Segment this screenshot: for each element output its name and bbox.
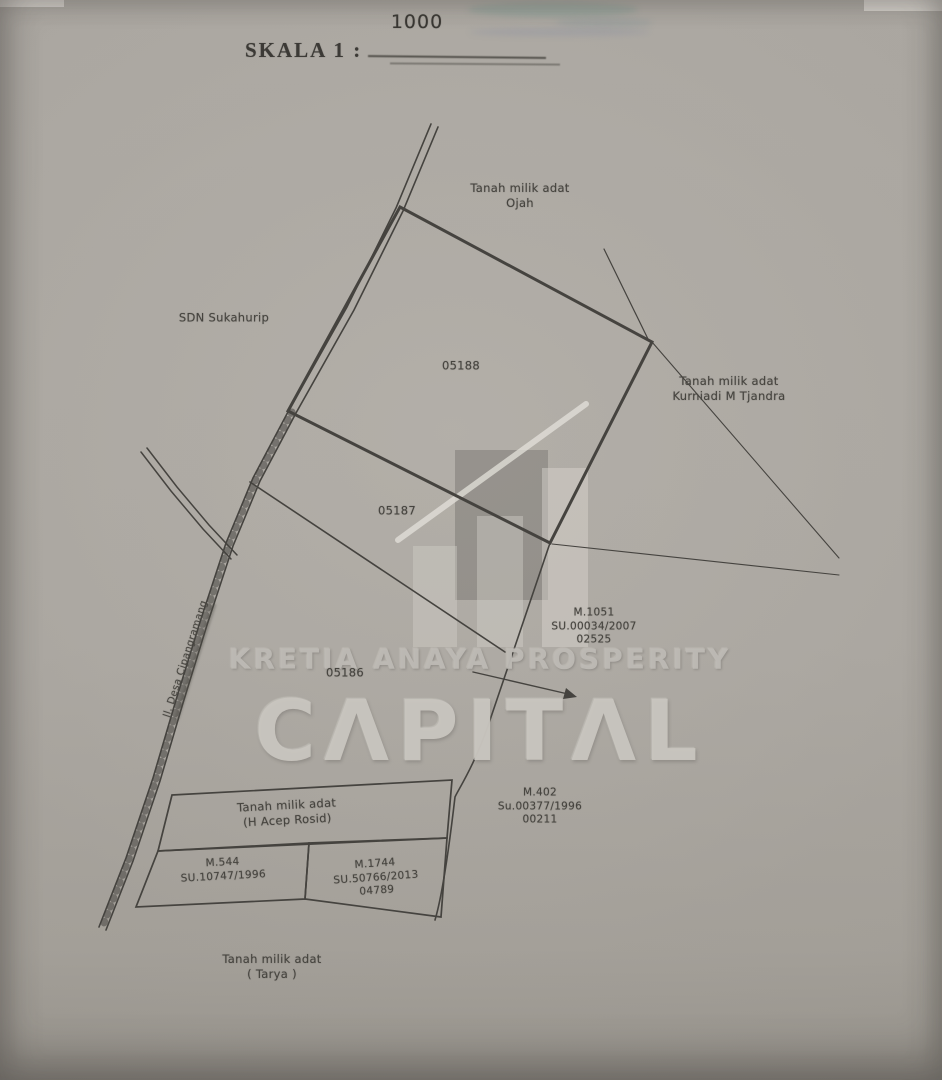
owner-east-line2: Kurniadi M Tjandra (672, 389, 785, 403)
m1051-line2: SU.00034/2007 (551, 620, 636, 632)
owner-east-line1: Tanah milik adat (679, 374, 778, 388)
school-label: SDN Sukahurip (179, 311, 269, 326)
m544-line2: SU.10747/1996 (180, 868, 266, 884)
owner-label-box: Tanah milik adat (H Acep Rosid) (237, 795, 338, 830)
m1051-line3: 02525 (577, 634, 612, 646)
owner-north-line1: Tanah milik adat (470, 181, 569, 195)
owner-south-line2: ( Tarya ) (247, 967, 297, 981)
parcel-05188-boundary (288, 207, 652, 543)
m1744-line2: SU.50766/2013 (333, 868, 419, 886)
certificate-m1051-label: M.1051 SU.00034/2007 02525 (551, 607, 636, 648)
parcel-number-south: 05186 (326, 666, 364, 681)
owner-label-east: Tanah milik adat Kurniadi M Tjandra (672, 374, 785, 404)
parcel-number-middle: 05187 (378, 504, 416, 519)
watermark-text-upper: KRETIA ANAYA PROSPERITY (229, 643, 731, 676)
owner-label-north: Tanah milik adat Ojah (470, 181, 569, 211)
owner-north-line2: Ojah (506, 196, 534, 210)
m1744-line1: M.1744 (354, 856, 396, 871)
road-fork-right-edge (147, 448, 237, 555)
certificate-m402-label: M.402 Su.00377/1996 00211 (498, 787, 582, 828)
parcel-number-north: 05188 (442, 359, 480, 374)
m402-line1: M.402 (523, 787, 557, 799)
certificate-m544-label: M.544 SU.10747/1996 (180, 854, 267, 886)
m544-line1: M.544 (205, 855, 240, 869)
owner-south-line1: Tanah milik adat (222, 952, 321, 966)
north-east-reference-line (604, 249, 648, 339)
m402-line2: Su.00377/1996 (498, 800, 582, 812)
scanned-survey-page: SKALA 1 : 1000 (0, 0, 942, 1080)
m1744-line3: 04789 (359, 884, 395, 898)
m402-line3: 00211 (523, 814, 558, 826)
road-fork-left-edge (141, 452, 231, 559)
certificate-m1744-label: M.1744 SU.50766/2013 04789 (332, 855, 420, 902)
fold-crease (398, 404, 586, 540)
right-reference-line-lower (552, 544, 839, 575)
watermark-text-capital: CΛPITΛL (254, 682, 705, 780)
owner-label-south: Tanah milik adat ( Tarya ) (222, 952, 321, 982)
survey-linework (0, 0, 942, 1080)
m1051-line1: M.1051 (574, 607, 615, 619)
